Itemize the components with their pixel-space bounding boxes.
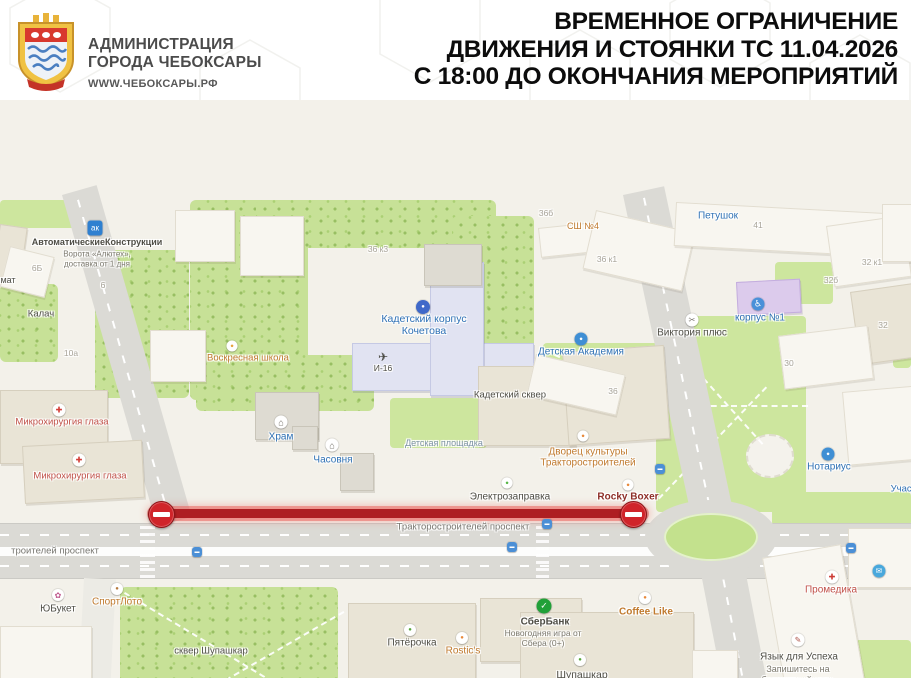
park-plaza: [746, 434, 794, 478]
building: [848, 528, 911, 588]
culture-palace-icon: ●: [578, 431, 589, 442]
scissors-icon: ✂: [686, 314, 699, 327]
map-label: И-16: [374, 363, 392, 373]
map-label: Кочетова: [402, 325, 447, 337]
medical-cross-icon: ✚: [73, 454, 86, 467]
map-label: 36: [608, 386, 617, 396]
map-label: Храм: [269, 432, 294, 443]
parking-icon: ▬: [655, 464, 665, 474]
ev-charge-icon: ●: [502, 478, 513, 489]
map-label: Запишитесь на: [766, 664, 829, 674]
pencil-icon: ✎: [792, 634, 805, 647]
restriction-line: [150, 509, 646, 518]
org-website: WWW.ЧЕБОКСАРЫ.РФ: [88, 78, 262, 90]
church-icon: ⌂: [275, 416, 288, 429]
map-label: Тракторостроителей проспект: [397, 522, 530, 533]
map-label: 32б: [824, 275, 838, 285]
notary-pin-icon: ●: [822, 448, 835, 461]
mall-icon: ●: [574, 654, 586, 666]
map-label: Детская площадка: [405, 438, 483, 448]
map-label: 10а: [64, 348, 78, 358]
medical-cross-icon: ✚: [53, 404, 66, 417]
map-label: 30: [784, 358, 793, 368]
map-label: Калач: [28, 309, 54, 320]
boxing-club-icon: ●: [623, 480, 634, 491]
cadet-pin-icon: ●: [416, 300, 430, 314]
roadside-green: [772, 492, 911, 526]
map-label: Электрозаправка: [470, 492, 550, 503]
map-label: Часовня: [313, 455, 352, 466]
pharmacy-cross-icon: ✚: [826, 571, 839, 584]
map-label: АвтоматическиеКонструкции: [32, 237, 163, 247]
page-title: ВРЕМЕННОЕ ОГРАНИЧЕНИЕ ДВИЖЕНИЯ И СТОЯНКИ…: [414, 8, 898, 91]
ak-logo-icon: ак: [88, 221, 103, 236]
park: [0, 284, 58, 362]
map-label: корпус №1: [735, 313, 785, 324]
map-label: Дворец культуры: [548, 447, 627, 458]
sber-logo-icon: ✓: [537, 599, 552, 614]
bus-stop-icon: ▬: [846, 543, 856, 553]
title-line3: С 18:00 ДО ОКОНЧАНИЯ МЕРОПРИЯТИЙ: [414, 63, 898, 91]
map-label: СШ №4: [567, 221, 599, 231]
building-planeta: [692, 650, 738, 678]
building: [240, 216, 304, 276]
header: АДМИНИСТРАЦИЯ ГОРОДА ЧЕБОКСАРЫ WWW.ЧЕБОК…: [0, 0, 911, 100]
map-label: Воскресная школа: [207, 353, 289, 364]
building-chapel: [292, 426, 318, 450]
chapel-icon: ⌂: [326, 439, 339, 452]
building-korpus-1: [736, 279, 802, 316]
coat-of-arms: [13, 13, 79, 91]
org-name-line2: ГОРОДА ЧЕБОКСАРЫ: [88, 54, 262, 72]
map-label: Ворота «Алютех»,: [63, 250, 131, 259]
roundabout-island: [664, 513, 758, 561]
map-label: Пятёрочка: [387, 638, 436, 649]
map-label: Сбера (0+): [522, 638, 565, 648]
flower-shop-icon: ✿: [52, 589, 64, 601]
building: [175, 210, 235, 262]
map-label: Язык для Успеха: [760, 652, 838, 663]
map-label: Участок: [891, 484, 911, 495]
map-label: Тракторостроителей: [540, 458, 635, 469]
building: [882, 204, 911, 262]
map-label: Микрохирургия глаза: [33, 471, 126, 482]
map-label: 36 к3: [368, 244, 388, 254]
bus-stop-icon: ▬: [192, 547, 202, 557]
school-icon: ●: [227, 341, 238, 352]
map-label: доставка от 1 дня: [64, 260, 130, 269]
crosswalk: [536, 526, 549, 578]
title-line1: ВРЕМЕННОЕ ОГРАНИЧЕНИЕ: [414, 8, 898, 36]
monument-plane-icon: ✈: [376, 350, 390, 364]
map-label: Кадетский корпус: [381, 313, 466, 325]
map-label: сквер Шупашкар: [174, 646, 248, 657]
title-line2: ДВИЖЕНИЯ И СТОЯНКИ ТС 11.04.2026: [414, 36, 898, 64]
coffee-icon: ●: [639, 592, 651, 604]
map-label: 36б: [539, 208, 553, 218]
map-label: 32: [878, 320, 887, 330]
map-label: СберБанк: [521, 617, 570, 628]
grocery-icon: ●: [404, 624, 416, 636]
map-label: СпортЛото: [92, 597, 142, 608]
map-label: Rostic's: [446, 646, 481, 657]
bus-stop-icon: ▬: [507, 542, 517, 552]
map-label: Промедика: [805, 585, 857, 596]
map-label: Детская Академия: [538, 347, 624, 358]
lottery-icon: ●: [111, 583, 123, 595]
map-label: Нотариус: [807, 462, 851, 473]
map-label: 36 к1: [597, 254, 617, 264]
map-label: Микрохирургия глаза: [15, 417, 108, 428]
bus-stop-icon: ▬: [542, 519, 552, 529]
building-notary: [842, 386, 911, 466]
map: ак✚✚⌂⌂●✈●●✂♿●●●●✚✎✉✓∞●●●●●●●✿●▬▬▬▬▬▬ Авт…: [0, 100, 911, 678]
restaurant-icon: ●: [456, 632, 468, 644]
building-sunday-school: [150, 330, 206, 382]
crosswalk: [140, 526, 155, 578]
wheelchair-icon: ♿: [752, 298, 765, 311]
map-label: Новогодняя игра от: [505, 628, 582, 638]
map-label: мат: [0, 275, 15, 285]
map-label: ЮБукет: [40, 604, 76, 615]
map-label: 6Б: [32, 263, 42, 273]
map-label: Шупашкар: [556, 669, 607, 678]
map-label: троителей проспект: [11, 546, 99, 557]
map-label: Coffee Like: [619, 607, 673, 618]
map-label: 32 к1: [862, 257, 882, 267]
map-label: 6: [101, 280, 106, 290]
map-label: Виктория плюс: [657, 328, 727, 339]
map-label: Петушок: [698, 211, 738, 222]
org-block: АДМИНИСТРАЦИЯ ГОРОДА ЧЕБОКСАРЫ WWW.ЧЕБОК…: [88, 36, 262, 90]
building: [0, 626, 92, 678]
org-name-line1: АДМИНИСТРАЦИЯ: [88, 36, 262, 54]
mail-icon: ✉: [873, 565, 886, 578]
map-label: Кадетский сквер: [474, 390, 546, 401]
poster: АДМИНИСТРАЦИЯ ГОРОДА ЧЕБОКСАРЫ WWW.ЧЕБОК…: [0, 0, 911, 678]
academy-pin-icon: ●: [575, 333, 588, 346]
no-entry-sign: [620, 501, 647, 528]
map-label: 41: [753, 220, 762, 230]
road-median: [0, 547, 911, 556]
no-entry-sign: [148, 501, 175, 528]
building: [424, 244, 482, 286]
